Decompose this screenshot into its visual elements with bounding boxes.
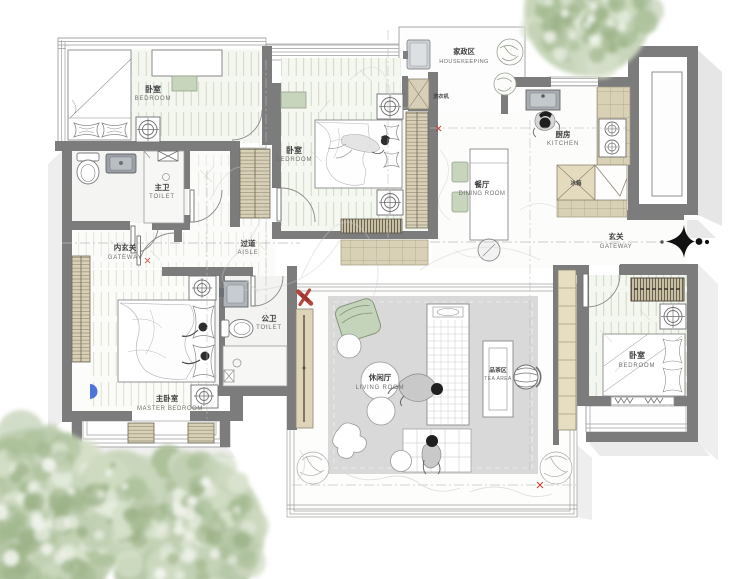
- svg-text:内玄关: 内玄关: [114, 242, 137, 252]
- svg-text:BEDROOM: BEDROOM: [135, 96, 172, 102]
- svg-text:冰箱: 冰箱: [570, 179, 582, 187]
- svg-text:家政区: 家政区: [453, 47, 475, 56]
- svg-text:卧室: 卧室: [286, 145, 302, 155]
- svg-text:主卫: 主卫: [155, 182, 170, 192]
- svg-text:GATEWAY: GATEWAY: [600, 244, 632, 250]
- svg-text:玄关: 玄关: [609, 231, 624, 241]
- svg-text:品茶区: 品茶区: [489, 366, 507, 374]
- svg-text:卧室: 卧室: [145, 84, 161, 94]
- svg-text:TEA AREA: TEA AREA: [484, 376, 512, 382]
- svg-text:休闲厅: 休闲厅: [368, 372, 392, 382]
- svg-text:GATEWAY: GATEWAY: [108, 255, 143, 261]
- svg-text:KITCHEN: KITCHEN: [547, 141, 579, 147]
- svg-text:公卫: 公卫: [262, 314, 277, 323]
- svg-text:过道: 过道: [241, 238, 256, 248]
- svg-text:AISLE: AISLE: [237, 250, 258, 256]
- svg-text:卧室: 卧室: [629, 350, 645, 360]
- svg-text:DINING ROOM: DINING ROOM: [459, 191, 506, 197]
- svg-text:TOILET: TOILET: [256, 325, 282, 331]
- svg-text:BEDROOM: BEDROOM: [619, 363, 656, 369]
- svg-text:MASTER BEDROOM: MASTER BEDROOM: [137, 406, 203, 412]
- svg-text:TOILET: TOILET: [149, 194, 175, 200]
- svg-text:餐厅: 餐厅: [474, 179, 490, 189]
- svg-text:厨房: 厨房: [556, 129, 571, 139]
- svg-text:主卧室: 主卧室: [156, 393, 179, 403]
- svg-text:HOUSEKEEPING: HOUSEKEEPING: [439, 59, 489, 65]
- svg-text:LIVING ROOM: LIVING ROOM: [356, 385, 405, 391]
- svg-text:BEDROOM: BEDROOM: [276, 157, 313, 163]
- svg-text:洗衣机: 洗衣机: [433, 92, 449, 100]
